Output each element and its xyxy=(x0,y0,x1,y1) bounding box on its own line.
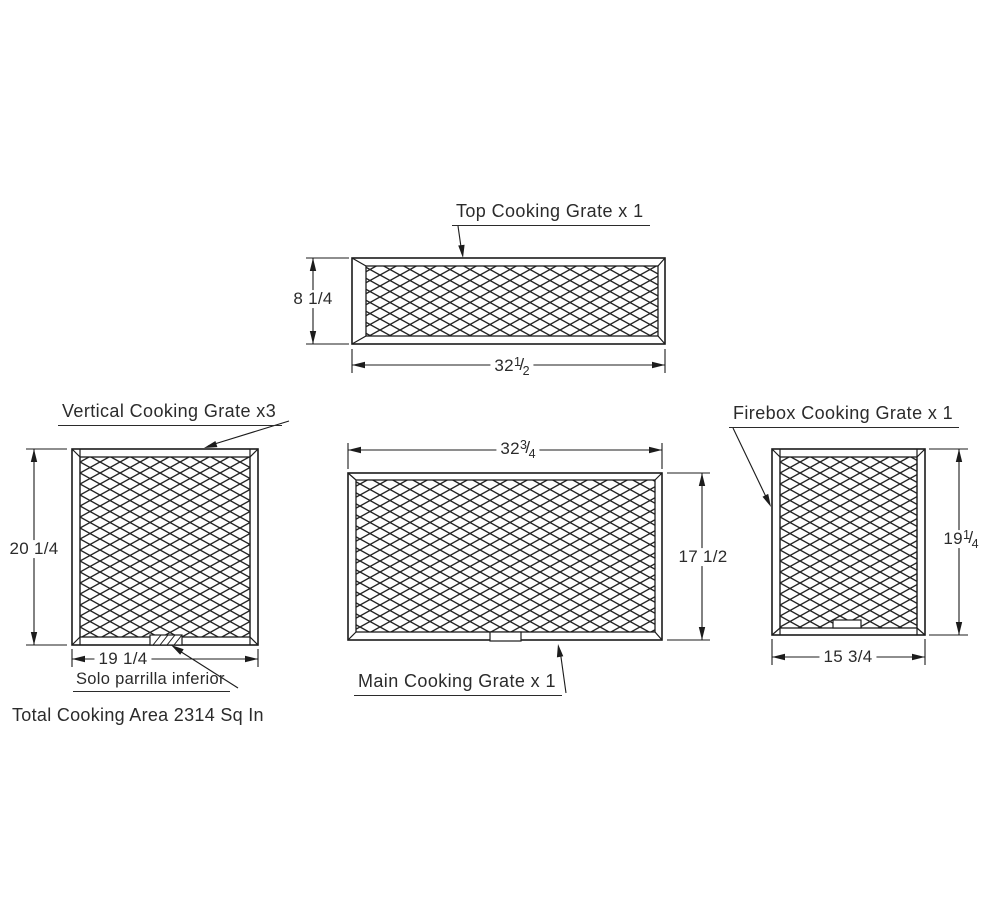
top-grate-mesh xyxy=(366,266,658,336)
main-grate-bottom-tab xyxy=(490,632,521,641)
vertical-grate-width-value: 19 1/4 xyxy=(94,650,151,668)
main-grate-label: Main Cooking Grate x 1 xyxy=(354,671,562,696)
grate-dimension-diagram: Top Cooking Grate x 1 8 1/4 321/2 Vertic… xyxy=(0,0,990,898)
stacked-fraction: 3/4 xyxy=(520,440,536,458)
arrow-left-icon xyxy=(352,362,365,368)
arrow-right-icon xyxy=(912,654,925,660)
leader-arrow-icon xyxy=(458,245,464,258)
dimension-whole-number: 32 xyxy=(494,356,514,375)
vertical-grate-mesh xyxy=(80,457,250,637)
dimension-whole-number: 19 xyxy=(943,529,963,548)
arrow-down-icon xyxy=(956,622,962,635)
leader-arrow-icon xyxy=(557,644,563,657)
firebox-grate-label-leader xyxy=(733,428,771,507)
arrow-down-icon xyxy=(699,627,705,640)
arrow-up-icon xyxy=(956,449,962,462)
firebox-grate-drawing xyxy=(733,428,968,665)
stacked-fraction: 1/4 xyxy=(963,530,979,548)
total-cooking-area-note: Total Cooking Area 2314 Sq In xyxy=(12,705,264,726)
lower-grate-note: Solo parrilla inferior xyxy=(73,670,230,692)
main-grate-mesh xyxy=(356,480,655,632)
arrow-right-icon xyxy=(245,656,258,662)
firebox-grate-width-value: 15 3/4 xyxy=(819,648,876,666)
vertical-grate-height-value: 20 1/4 xyxy=(5,540,62,558)
fraction-denominator: 2 xyxy=(523,365,530,378)
top-grate-label-leader xyxy=(458,226,465,258)
arrow-right-icon xyxy=(649,447,662,453)
vertical-grate-drawing xyxy=(26,421,289,688)
dimension-whole-number: 32 xyxy=(500,439,520,458)
vertical-grate-label: Vertical Cooking Grate x3 xyxy=(58,401,282,426)
arrow-up-icon xyxy=(699,473,705,486)
firebox-grate-label: Firebox Cooking Grate x 1 xyxy=(729,403,959,428)
fraction-denominator: 4 xyxy=(972,538,979,551)
leader-arrow-icon xyxy=(171,645,184,655)
top-grate-drawing xyxy=(306,226,665,373)
main-grate-drawing xyxy=(348,443,710,693)
arrow-down-icon xyxy=(310,331,316,344)
firebox-grate-height-value: 191/4 xyxy=(939,530,982,548)
line-art-layer xyxy=(0,0,990,898)
leader-arrow-icon xyxy=(204,441,217,448)
arrow-left-icon xyxy=(72,656,85,662)
main-grate-width-value: 323/4 xyxy=(496,440,539,458)
top-grate-height-value: 8 1/4 xyxy=(289,290,336,308)
arrow-down-icon xyxy=(31,632,37,645)
arrow-left-icon xyxy=(348,447,361,453)
arrow-up-icon xyxy=(310,258,316,271)
top-grate-label: Top Cooking Grate x 1 xyxy=(452,201,650,226)
firebox-grate-bottom-tab xyxy=(833,620,861,628)
vertical-grate-bottom-tab xyxy=(150,635,182,645)
stacked-fraction: 1/2 xyxy=(514,357,530,375)
leader-arrow-icon xyxy=(763,494,772,507)
arrow-left-icon xyxy=(772,654,785,660)
main-grate-height-value: 17 1/2 xyxy=(674,548,731,566)
arrow-right-icon xyxy=(652,362,665,368)
arrow-up-icon xyxy=(31,449,37,462)
firebox-grate-mesh xyxy=(780,457,917,628)
top-grate-width-value: 321/2 xyxy=(490,357,533,375)
leader-line xyxy=(733,428,768,501)
fraction-denominator: 4 xyxy=(529,448,536,461)
